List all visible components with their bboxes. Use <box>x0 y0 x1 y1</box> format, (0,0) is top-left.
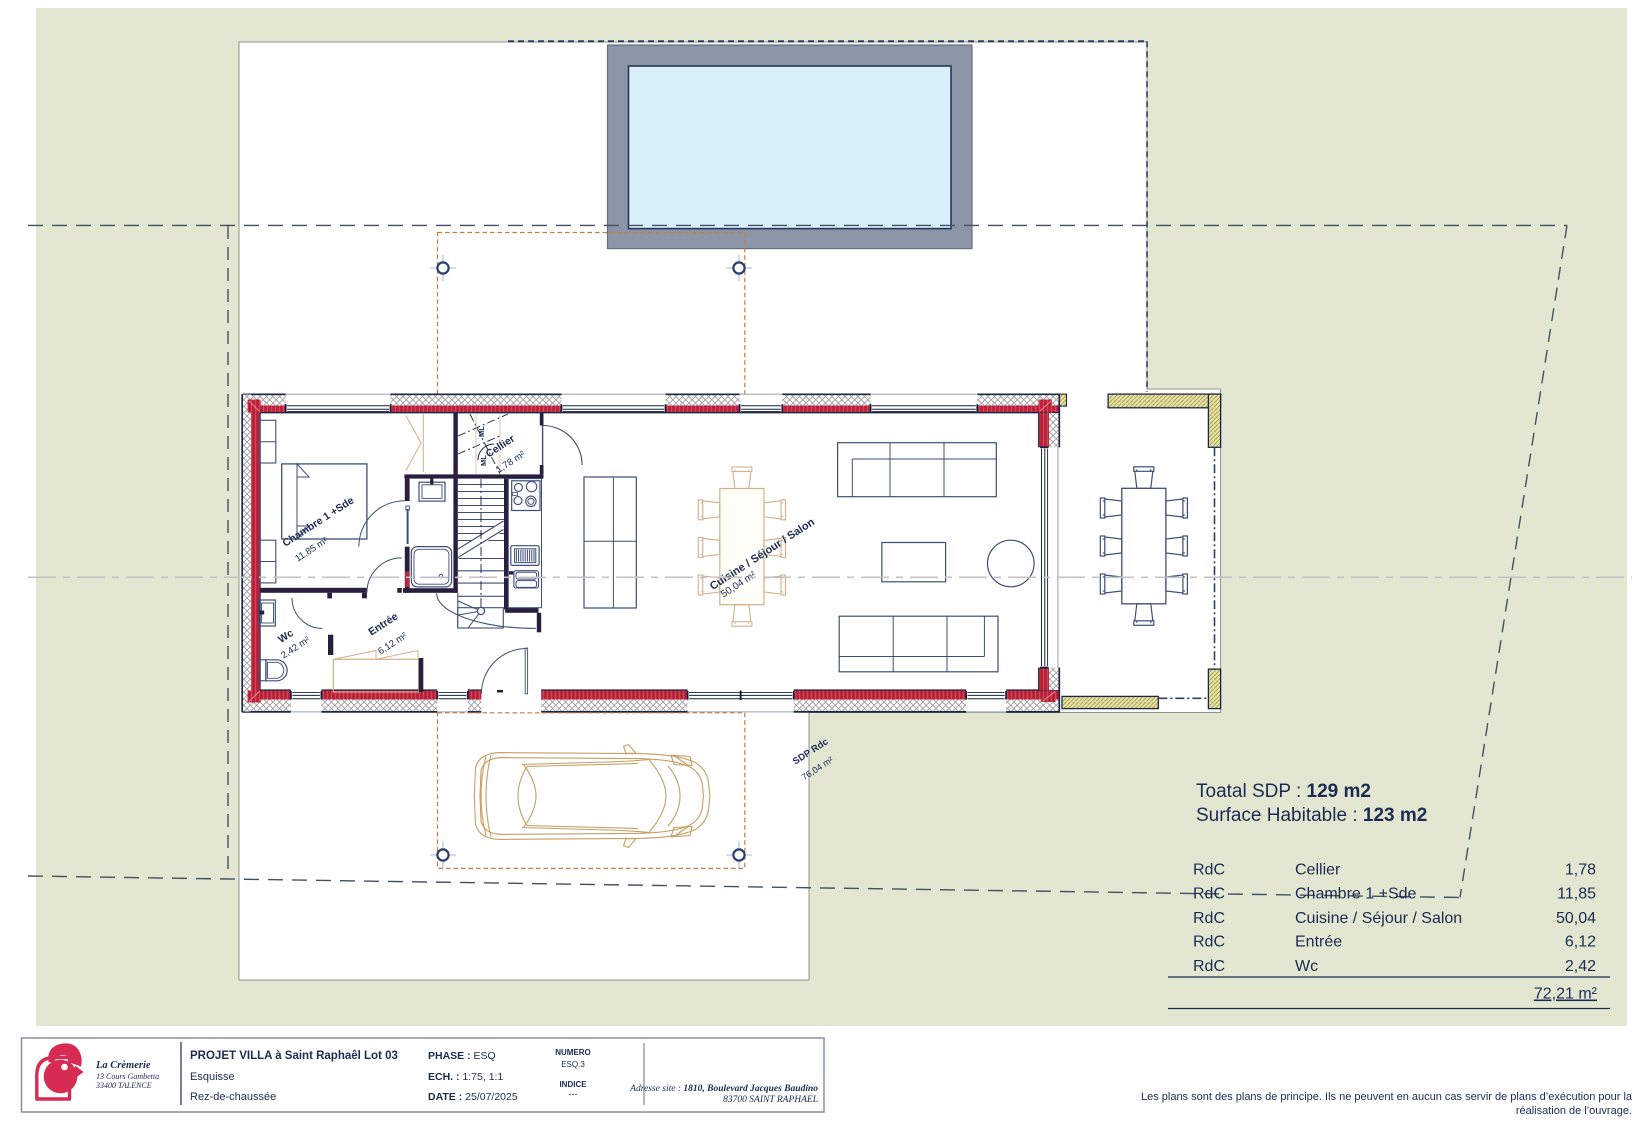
svg-text:ECH. : 1:75, 1:1: ECH. : 1:75, 1:1 <box>428 1071 503 1083</box>
svg-text:DATE : 25/07/2025: DATE : 25/07/2025 <box>428 1091 518 1103</box>
svg-text:réalisation de l’ouvrage.: réalisation de l’ouvrage. <box>1516 1105 1632 1117</box>
svg-text:6,12: 6,12 <box>1565 934 1596 951</box>
svg-text:La Crèmerie: La Crèmerie <box>95 1060 151 1071</box>
svg-text:Esquisse: Esquisse <box>190 1071 235 1083</box>
svg-text:Entrée: Entrée <box>1295 934 1342 951</box>
svg-text:ESQ.3: ESQ.3 <box>561 1060 585 1069</box>
svg-text:ML: ML <box>479 455 488 466</box>
svg-text:Cellier: Cellier <box>1295 862 1341 879</box>
svg-text:ML: ML <box>477 426 486 437</box>
svg-text:11,85: 11,85 <box>1557 886 1596 903</box>
svg-text:Rez-de-chaussée: Rez-de-chaussée <box>190 1091 276 1103</box>
svg-text:INDICE: INDICE <box>559 1080 587 1089</box>
svg-text:33400 TALENCE: 33400 TALENCE <box>95 1081 152 1090</box>
svg-text:Cuisine / Séjour / Salon: Cuisine / Séjour / Salon <box>1295 910 1462 927</box>
svg-text:50,04: 50,04 <box>1556 910 1596 927</box>
svg-text:RdC: RdC <box>1193 886 1225 903</box>
svg-text:NUMERO: NUMERO <box>555 1048 591 1057</box>
svg-text:Adresse site : 1810, Boulevard: Adresse site : 1810, Boulevard Jacques B… <box>629 1084 818 1094</box>
svg-text:72,21 m²: 72,21 m² <box>1534 986 1598 1003</box>
svg-text:RdC: RdC <box>1193 910 1225 927</box>
svg-text:RdC: RdC <box>1193 862 1225 879</box>
svg-text:PHASE : ESQ: PHASE : ESQ <box>428 1050 496 1062</box>
svg-text:Surface Habitable : 123 m2: Surface Habitable : 123 m2 <box>1196 805 1427 826</box>
svg-text:Chambre 1 +Sde: Chambre 1 +Sde <box>1295 886 1417 903</box>
svg-text:Wc: Wc <box>1295 958 1318 975</box>
svg-text:RdC: RdC <box>1193 958 1225 975</box>
svg-text:1,78: 1,78 <box>1565 862 1596 879</box>
svg-text:---: --- <box>569 1089 578 1099</box>
svg-text:Les plans sont des plans de pr: Les plans sont des plans de principe. Il… <box>1141 1091 1633 1103</box>
svg-text:83700 SAINT RAPHAEL: 83700 SAINT RAPHAEL <box>723 1095 818 1105</box>
svg-text:PROJET VILLA à Saint Raphaêl L: PROJET VILLA à Saint Raphaêl Lot 03 <box>190 1050 398 1062</box>
svg-text:2,42: 2,42 <box>1565 958 1596 975</box>
svg-text:13 Cours Gambetta: 13 Cours Gambetta <box>96 1072 159 1081</box>
svg-text:Toatal SDP : 129 m2: Toatal SDP : 129 m2 <box>1196 781 1371 802</box>
svg-text:RdC: RdC <box>1193 934 1225 951</box>
